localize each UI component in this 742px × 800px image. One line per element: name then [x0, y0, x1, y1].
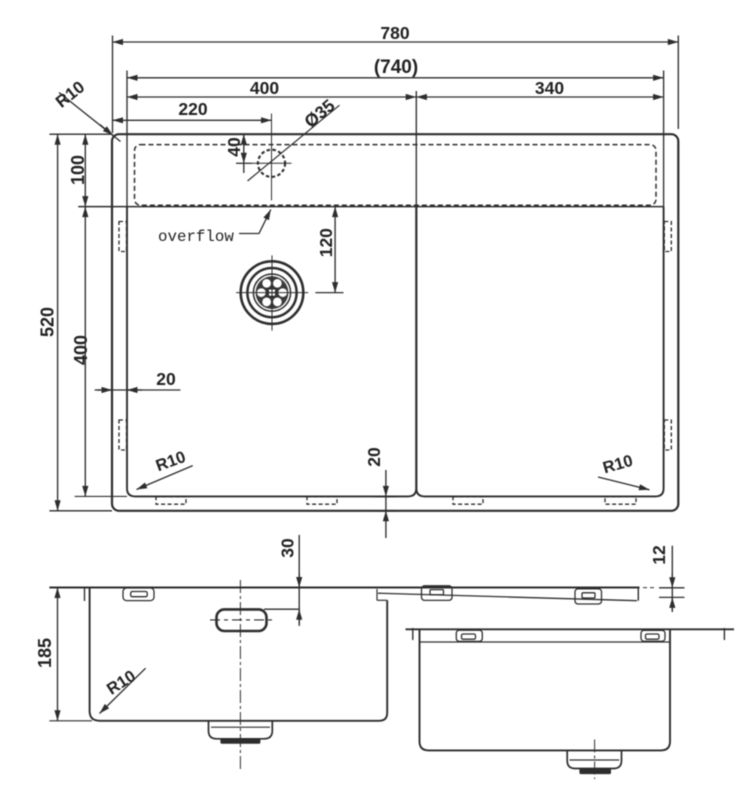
svg-text:220: 220: [178, 99, 207, 119]
svg-text:R10: R10: [154, 448, 189, 475]
svg-text:40: 40: [224, 137, 244, 157]
svg-text:20: 20: [364, 447, 384, 467]
svg-text:R10: R10: [52, 77, 88, 111]
svg-text:185: 185: [35, 638, 55, 668]
svg-text:520: 520: [37, 307, 57, 337]
svg-text:R10: R10: [104, 667, 139, 699]
svg-text:20: 20: [156, 369, 176, 389]
svg-text:12: 12: [649, 545, 669, 565]
svg-text:30: 30: [278, 538, 298, 558]
svg-text:Ø35: Ø35: [300, 95, 338, 132]
svg-text:overflow: overflow: [158, 228, 234, 246]
svg-text:R10: R10: [601, 452, 635, 478]
svg-text:(740): (740): [374, 57, 418, 78]
svg-text:100: 100: [68, 155, 88, 185]
svg-text:340: 340: [535, 78, 564, 98]
svg-text:780: 780: [380, 23, 409, 43]
svg-text:400: 400: [250, 78, 279, 98]
svg-text:400: 400: [71, 335, 91, 365]
svg-text:120: 120: [316, 228, 336, 257]
